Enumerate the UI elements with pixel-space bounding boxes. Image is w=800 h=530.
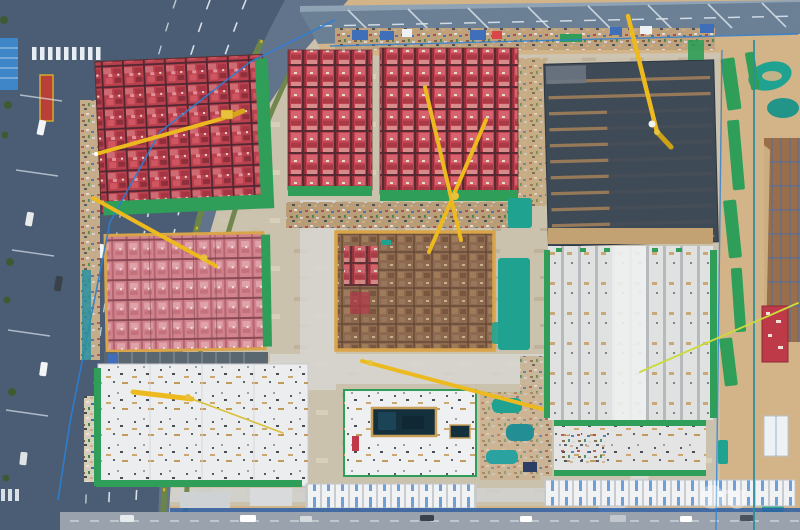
teal-pool — [486, 450, 518, 464]
pool-water — [378, 412, 396, 430]
scene-svg — [0, 0, 800, 530]
boundary-wall — [170, 508, 800, 512]
unstriped-slab-area — [607, 103, 716, 238]
teal-pool — [506, 424, 534, 441]
center-band — [612, 246, 646, 420]
zebra-crossing-bottom — [1, 489, 19, 501]
hoarding-panels — [82, 270, 91, 360]
green-netting — [288, 186, 372, 196]
dark-structure — [523, 462, 537, 472]
block-b-red-formwork — [288, 50, 372, 196]
site-offices — [545, 480, 795, 506]
block-g-striped-slab — [544, 228, 717, 420]
aerial-photo — [0, 0, 800, 530]
green-netting — [554, 470, 706, 476]
red-structure — [762, 306, 788, 362]
material-cluster — [560, 432, 606, 466]
red-formwork-patch — [344, 246, 378, 286]
green-netting — [94, 368, 101, 486]
dirt-strip — [548, 228, 713, 244]
small-tank — [450, 425, 470, 438]
blue-building — [0, 38, 18, 90]
block-d-dark-slab — [544, 60, 719, 246]
site-offices — [306, 484, 476, 508]
red-patch — [350, 292, 370, 314]
green-netting — [554, 420, 706, 426]
block-a-red-formwork — [95, 54, 275, 215]
block-c-red-formwork — [380, 48, 518, 201]
block-h-white-slab — [94, 364, 308, 487]
pool-water — [402, 416, 424, 429]
block-i-pool-building — [344, 390, 476, 476]
block-f-brown-deck — [336, 232, 494, 350]
green-netting — [96, 480, 302, 487]
zebra-crossing-top — [32, 47, 101, 60]
slab-light-corner — [546, 65, 586, 84]
teal-speck — [382, 240, 391, 245]
block-k-slab-strip — [554, 420, 706, 476]
red-machine — [352, 436, 359, 451]
